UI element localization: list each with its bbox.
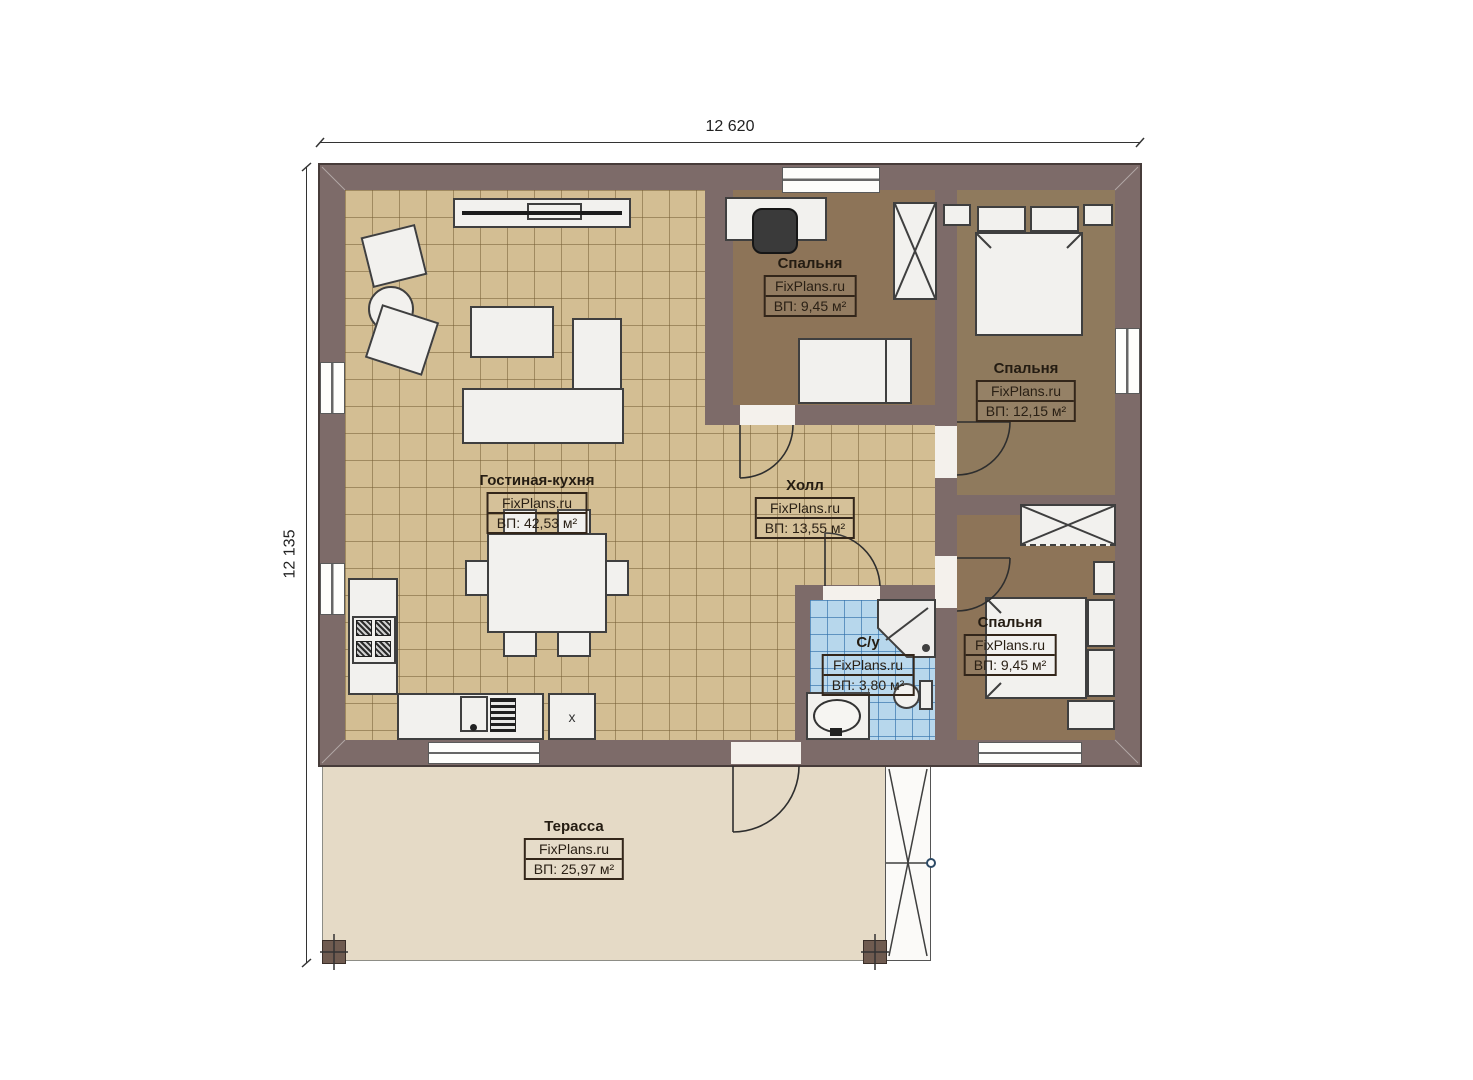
dish-drainer — [490, 698, 516, 732]
dimension-width-label: 12 620 — [690, 118, 770, 136]
watermark-text: FixPlans.ru — [978, 382, 1074, 400]
dining-table — [487, 533, 607, 633]
stove-burner — [356, 620, 372, 636]
room-info-box: FixPlans.ru ВП: 25,97 м² — [524, 838, 624, 880]
room-area: ВП: 3,80 м² — [824, 674, 913, 694]
dining-chair — [605, 560, 629, 596]
room-name: Терасса — [524, 818, 624, 835]
window-right-bedroom — [1115, 328, 1140, 394]
room-area: ВП: 12,15 м² — [978, 400, 1074, 420]
door-gap-terrace — [731, 742, 801, 764]
window-left-1 — [320, 362, 345, 414]
wardrobe-top-bedroom — [893, 202, 937, 300]
room-name: Спальня — [764, 255, 857, 272]
room-name: С/у — [822, 634, 915, 651]
nightstand — [1067, 700, 1115, 730]
coffee-table — [470, 306, 554, 358]
floor-plan: 12 620 12 135 — [0, 0, 1473, 1080]
dimension-line-left — [306, 167, 307, 963]
watermark-text: FixPlans.ru — [757, 499, 853, 517]
door-gap-bedroom-top — [740, 405, 795, 425]
room-info-box: FixPlans.ru ВП: 12,15 м² — [976, 380, 1076, 422]
watermark-text: FixPlans.ru — [489, 494, 585, 512]
room-name: Спальня — [964, 614, 1057, 631]
terrace-trellis — [885, 765, 931, 961]
watermark-text: FixPlans.ru — [824, 656, 913, 674]
pillow — [1087, 649, 1115, 697]
kitchen-cabinet: x — [548, 693, 596, 740]
room-label-living-kitchen: Гостиная-кухня FixPlans.ru ВП: 42,53 м² — [480, 472, 595, 534]
door-gap-bedroom-right — [935, 426, 957, 478]
tv-screen — [527, 203, 582, 220]
desk-chair — [752, 208, 798, 254]
room-info-box: FixPlans.ru ВП: 9,45 м² — [764, 275, 857, 317]
window-left-2 — [320, 563, 345, 615]
dining-chair — [503, 631, 537, 657]
room-info-box: FixPlans.ru ВП: 3,80 м² — [822, 654, 915, 696]
pillow — [977, 206, 1026, 232]
watermark-text: FixPlans.ru — [966, 636, 1055, 654]
room-label-bedroom-top: Спальня FixPlans.ru ВП: 9,45 м² — [764, 255, 857, 317]
pillow — [1087, 599, 1115, 647]
room-label-bathroom: С/у FixPlans.ru ВП: 3,80 м² — [822, 634, 915, 696]
sink-faucet — [470, 724, 477, 731]
stove-burner — [375, 641, 391, 657]
room-label-hall: Холл FixPlans.ru ВП: 13,55 м² — [755, 477, 855, 539]
stove-burner — [356, 641, 372, 657]
double-bed-right — [975, 232, 1083, 336]
nightstand — [1093, 561, 1115, 595]
room-label-bedroom-bottom: Спальня FixPlans.ru ВП: 9,45 м² — [964, 614, 1057, 676]
terrace-column-left — [322, 940, 346, 964]
room-name: Гостиная-кухня — [480, 472, 595, 489]
stove-burner — [375, 620, 391, 636]
room-area: ВП: 25,97 м² — [526, 858, 622, 878]
entry-door-opening — [782, 167, 880, 193]
door-gap-bedroom-bottom — [935, 556, 957, 608]
room-info-box: FixPlans.ru ВП: 9,45 м² — [964, 634, 1057, 676]
room-area: ВП: 42,53 м² — [489, 512, 585, 532]
pillow — [1030, 206, 1079, 232]
terrace-column-right — [863, 940, 887, 964]
window-bedroom-bottom — [978, 742, 1082, 764]
room-label-bedroom-right: Спальня FixPlans.ru ВП: 12,15 м² — [976, 360, 1076, 422]
dimension-line-top — [320, 142, 1140, 143]
dining-chair — [557, 631, 591, 657]
nightstand — [943, 204, 971, 226]
toilet-tank — [919, 680, 933, 710]
dining-chair — [465, 560, 489, 596]
nightstand — [1083, 204, 1113, 226]
room-label-terrace: Терасса FixPlans.ru ВП: 25,97 м² — [524, 818, 624, 880]
wardrobe-bottom-bedroom — [1020, 504, 1116, 546]
door-gap-bathroom — [823, 586, 880, 600]
room-area: ВП: 9,45 м² — [766, 295, 855, 315]
basin-tap — [830, 728, 842, 736]
room-name: Холл — [755, 477, 855, 494]
sofa-body — [462, 388, 624, 444]
room-info-box: FixPlans.ru ВП: 13,55 м² — [755, 497, 855, 539]
room-area: ВП: 9,45 м² — [966, 654, 1055, 674]
room-area: ВП: 13,55 м² — [757, 517, 853, 537]
watermark-text: FixPlans.ru — [766, 277, 855, 295]
window-kitchen — [428, 742, 540, 764]
watermark-text: FixPlans.ru — [526, 840, 622, 858]
cabinet-marker: x — [569, 709, 576, 725]
dimension-height-label: 12 135 — [281, 530, 299, 579]
room-name: Спальня — [976, 360, 1076, 377]
room-info-box: FixPlans.ru ВП: 42,53 м² — [487, 492, 587, 534]
single-bed — [798, 338, 912, 404]
